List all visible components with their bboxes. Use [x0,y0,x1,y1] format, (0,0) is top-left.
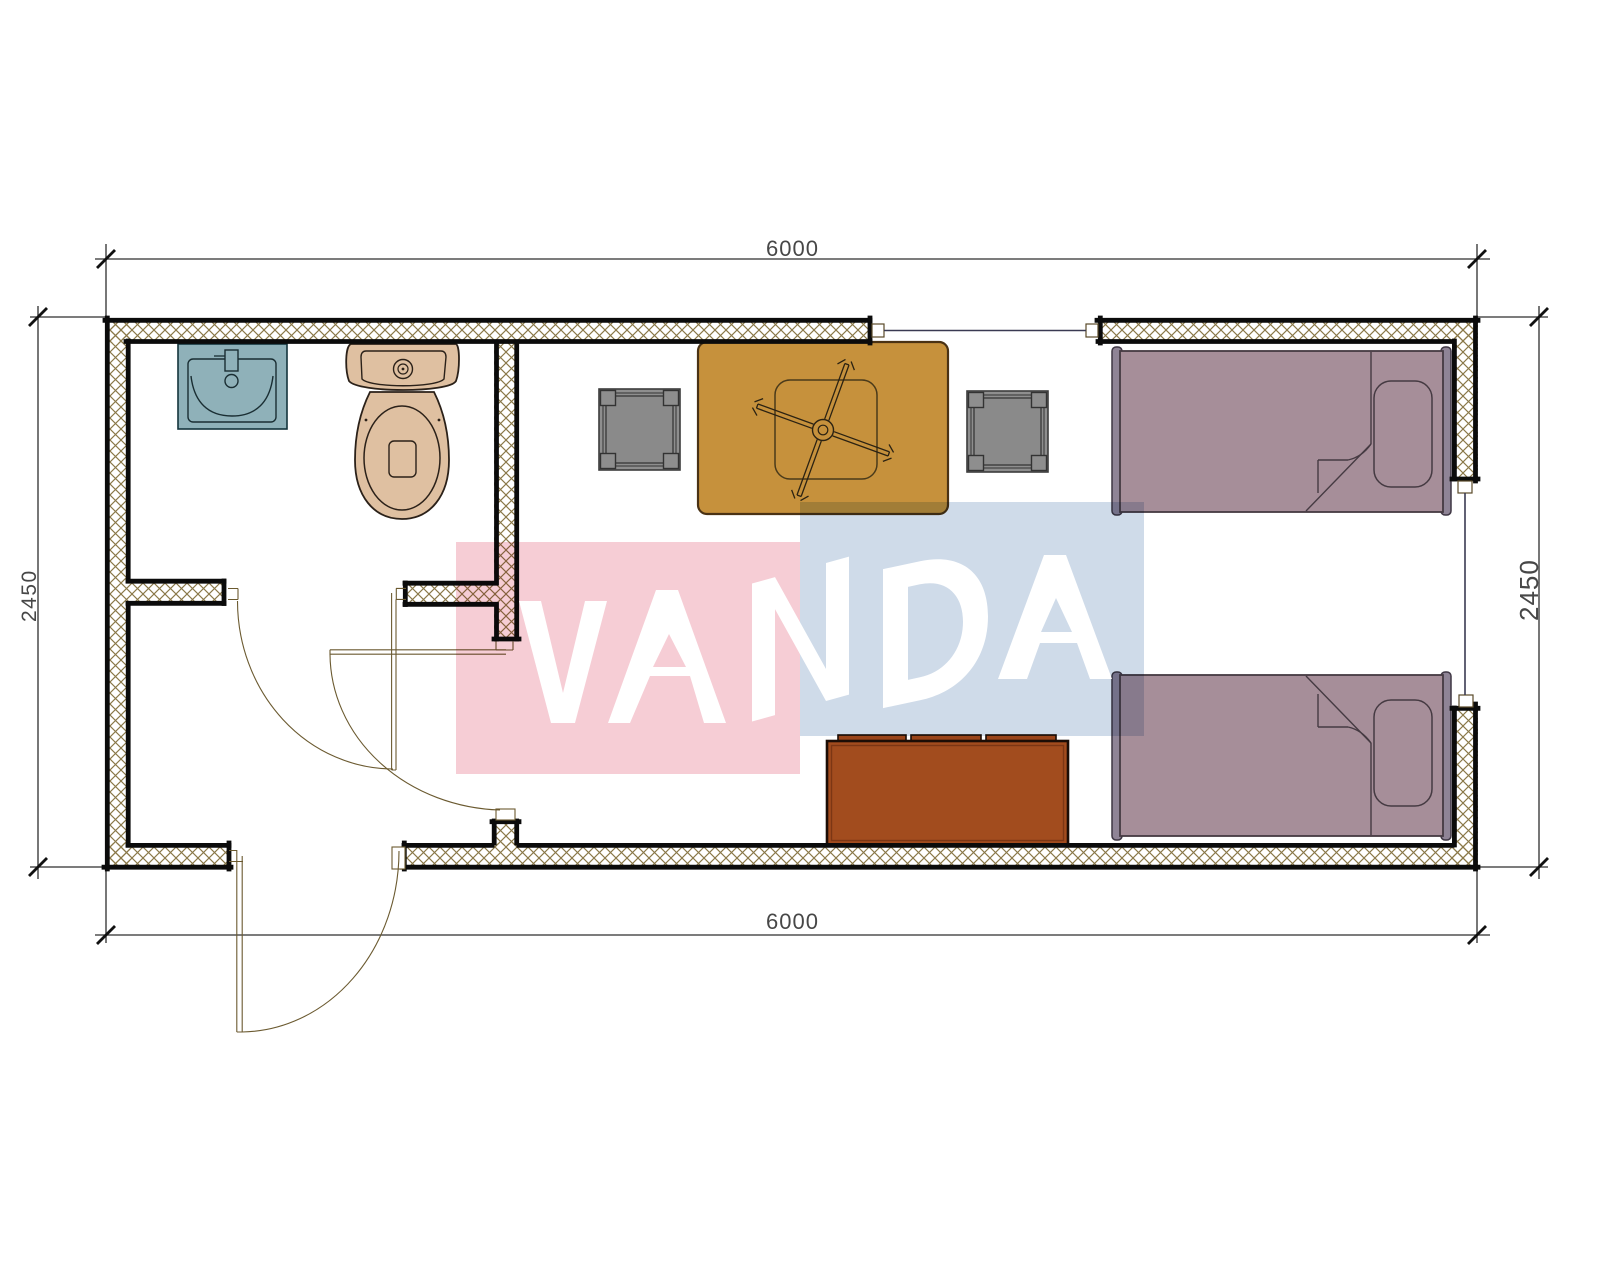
svg-text:2450: 2450 [18,569,41,622]
svg-text:2450: 2450 [1514,559,1544,621]
svg-text:6000: 6000 [766,236,819,261]
svg-text:6000: 6000 [766,909,819,934]
